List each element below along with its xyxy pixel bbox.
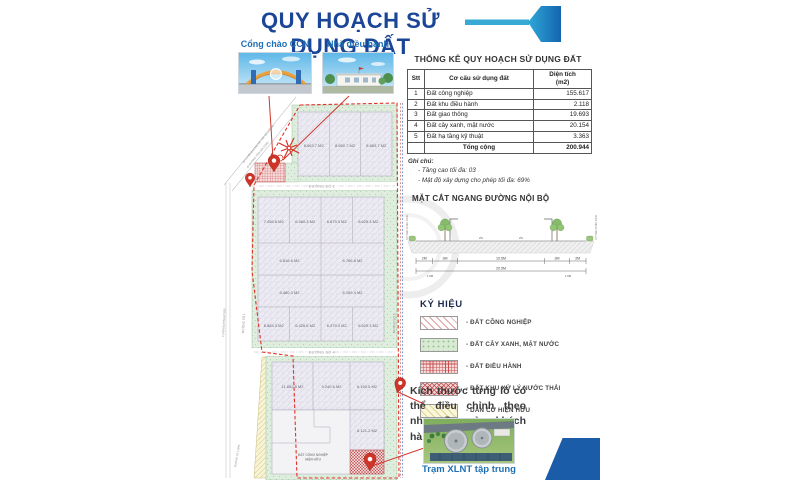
notes-title: Ghi chú:: [408, 158, 434, 165]
lot-label: 8.663.7 M2: [304, 143, 325, 148]
right-boundary: [401, 103, 403, 478]
post-label-left: CỘT ĐÈN CHIẾU SÁNG: [406, 214, 409, 239]
lot-label: 11.652.8 M2: [282, 384, 305, 389]
info-panel: THỐNG KÊ QUY HOẠCH SỬ DỤNG ĐẤT Stt Cơ cấ…: [404, 54, 600, 426]
legend-item: - ĐẤT ĐIỀU HÀNH: [420, 360, 600, 374]
road-1-label: ĐƯỜNG SỐ 1: [240, 313, 246, 333]
table-row: 1 Đất công nghiệp 155.617: [408, 88, 592, 99]
road-cross-section: CỘT ĐÈN CHIẾU SÁNG CỘT ĐÈN CHIẾU SÁNG 2%…: [406, 207, 598, 281]
stats-title: THỐNG KÊ QUY HOẠCH SỬ DỤNG ĐẤT: [404, 54, 592, 64]
lot-label: 6.121.2 M2: [357, 428, 378, 433]
lamp-post-icon: [544, 219, 552, 241]
post-label-right: CỘT ĐÈN CHIẾU SÁNG: [595, 214, 598, 239]
legend-swatch-industrial: [420, 316, 458, 330]
road-3-label: ĐƯỜNG SỐ 3: [391, 313, 397, 333]
table-row: 3 Đất giao thông 19.693: [408, 110, 592, 121]
slope-label: 2%: [479, 236, 484, 240]
slope-label: 2%: [519, 236, 524, 240]
wastewater-plant-photo: [423, 418, 515, 464]
col-category: Cơ cấu sử dụng đất: [424, 70, 533, 89]
col-no: Stt: [408, 70, 425, 89]
table-row: 4 Đất cây xanh, mặt nước 20.154: [408, 121, 592, 132]
gate-photo-label: Cổng chào CCN: [238, 39, 312, 49]
lot-label: 6.816.6 M2: [279, 258, 300, 263]
col-area: Diện tích (m2): [534, 70, 592, 89]
lot-label: 6.884.3 M2: [264, 323, 285, 328]
header-arrow-decoration: [455, 4, 585, 49]
existing-industrial-label-1: ĐẤT CÔNG NGHIỆP: [298, 452, 329, 457]
lot-label: 6.629.3 M2: [358, 323, 379, 328]
poster-page: QUY HOẠCH SỬ DỤNG ĐẤT Cổng chào CCN Nhà …: [0, 0, 800, 480]
road-4-label: ĐƯỜNG SỐ 4: [309, 350, 335, 355]
wastewater-area: [350, 450, 384, 474]
legend-label: - ĐẤT CÔNG NGHIỆP: [466, 319, 532, 326]
lot-label: 6.629.3 M2: [358, 219, 379, 224]
table-header-row: Stt Cơ cấu sử dụng đất Diện tích (m2): [408, 70, 592, 89]
lot-label: 6.150.5 M2: [357, 384, 378, 389]
existing-industrial-label-2: HIỆN HỮU: [305, 457, 321, 462]
lamp-post-icon: [450, 219, 458, 241]
road-2-label: ĐƯỜNG SỐ 2: [309, 184, 335, 189]
dim-label: 3M: [443, 256, 448, 260]
plant-photo-caption: Trạm XLNT tập trung: [420, 464, 518, 475]
lot-label: 8.663.7 M2: [366, 143, 387, 148]
table-row: 2 Đất khu điều hành 2.118: [408, 99, 592, 110]
dim-label: 2M: [575, 256, 580, 260]
dim-label: 2M: [422, 256, 427, 260]
lot-label: 6.159.4 M2: [342, 290, 363, 295]
legend-title: KÝ HIỆU: [420, 299, 600, 310]
entrance-green-square: [285, 163, 298, 182]
admin-building-photo: [322, 52, 394, 94]
total-label: Tổng cộng: [424, 143, 533, 154]
legend-item: - ĐẤT CÂY XANH, MẶT NƯỚC: [420, 338, 600, 352]
col-area-line1: Diện tích: [536, 71, 589, 79]
note-line: - Mật độ xây dựng cho phép tối đa: 69%: [418, 177, 600, 184]
admin-area: [255, 163, 285, 182]
road-2: ĐƯỜNG SỐ 2: [248, 182, 397, 190]
legend-swatch-admin: [420, 360, 458, 374]
table-notes: Ghi chú: - Tầng cao tối đa: 03 - Mật độ …: [408, 158, 600, 184]
offset-dim-label: 1.5M: [565, 274, 572, 278]
total-dim-label: 20.5M: [496, 266, 506, 270]
lot-label: 6.679.3 M2: [327, 219, 348, 224]
lot-label: 6.460.3 M2: [295, 219, 316, 224]
site-map: TUYẾN ĐƯỜNG ĐT.825 ĐI TUYẾN ĐƯỜNG BỘ VEN…: [218, 85, 415, 480]
bush-icon: [587, 236, 594, 241]
admin-photo-label: Nhà điều hành: [322, 39, 394, 49]
legend-label: - ĐẤT ĐIỀU HÀNH: [466, 363, 522, 370]
bush-icon: [409, 236, 416, 241]
alley-road-label: ĐƯỜNG LÔ 2 (5M): [232, 444, 241, 467]
land-use-table: Stt Cơ cấu sử dụng đất Diện tích (m2) 1 …: [407, 69, 592, 154]
lot-label: 6.480.3 M2: [279, 290, 300, 295]
table-total-row: Tổng cộng 200.944: [408, 143, 592, 154]
col-area-line2: (m2): [536, 79, 589, 87]
gate-photo: [238, 52, 312, 94]
lot-label: 8.650.7 M2: [335, 143, 356, 148]
table-row: 5 Đất hạ tầng kỹ thuật 3.363: [408, 132, 592, 143]
legend-item: - ĐẤT CÔNG NGHIỆP: [420, 316, 600, 330]
corner-decoration: [545, 438, 600, 480]
lot-label: 6.426.6 M2: [295, 323, 316, 328]
lot-label: 6.766.8 M2: [342, 258, 363, 263]
offset-dim-label: 1.5M: [427, 274, 434, 278]
road-4: ĐƯỜNG SỐ 4: [252, 348, 397, 356]
dim-label: 3M: [555, 256, 560, 260]
road-dt825: TUYẾN ĐƯỜNG ĐT.825: [220, 183, 230, 478]
note-line: - Tầng cao tối đa: 03: [418, 167, 600, 174]
road-dt825-label: TUYẾN ĐƯỜNG ĐT.825: [220, 308, 227, 337]
cross-section-title: MẶT CẮT NGANG ĐƯỜNG NỘI BỘ: [412, 194, 600, 203]
total-value: 200.944: [534, 143, 592, 154]
lot-label: 7.456.6 M2: [264, 219, 285, 224]
lot-label: 9.240.6 M2: [321, 384, 342, 389]
legend-label: - ĐẤT CÂY XANH, MẶT NƯỚC: [466, 341, 559, 348]
lot-label: 6.479.3 M2: [327, 323, 348, 328]
dim-label: 10.5M: [496, 256, 506, 260]
legend-swatch-greenery: [420, 338, 458, 352]
